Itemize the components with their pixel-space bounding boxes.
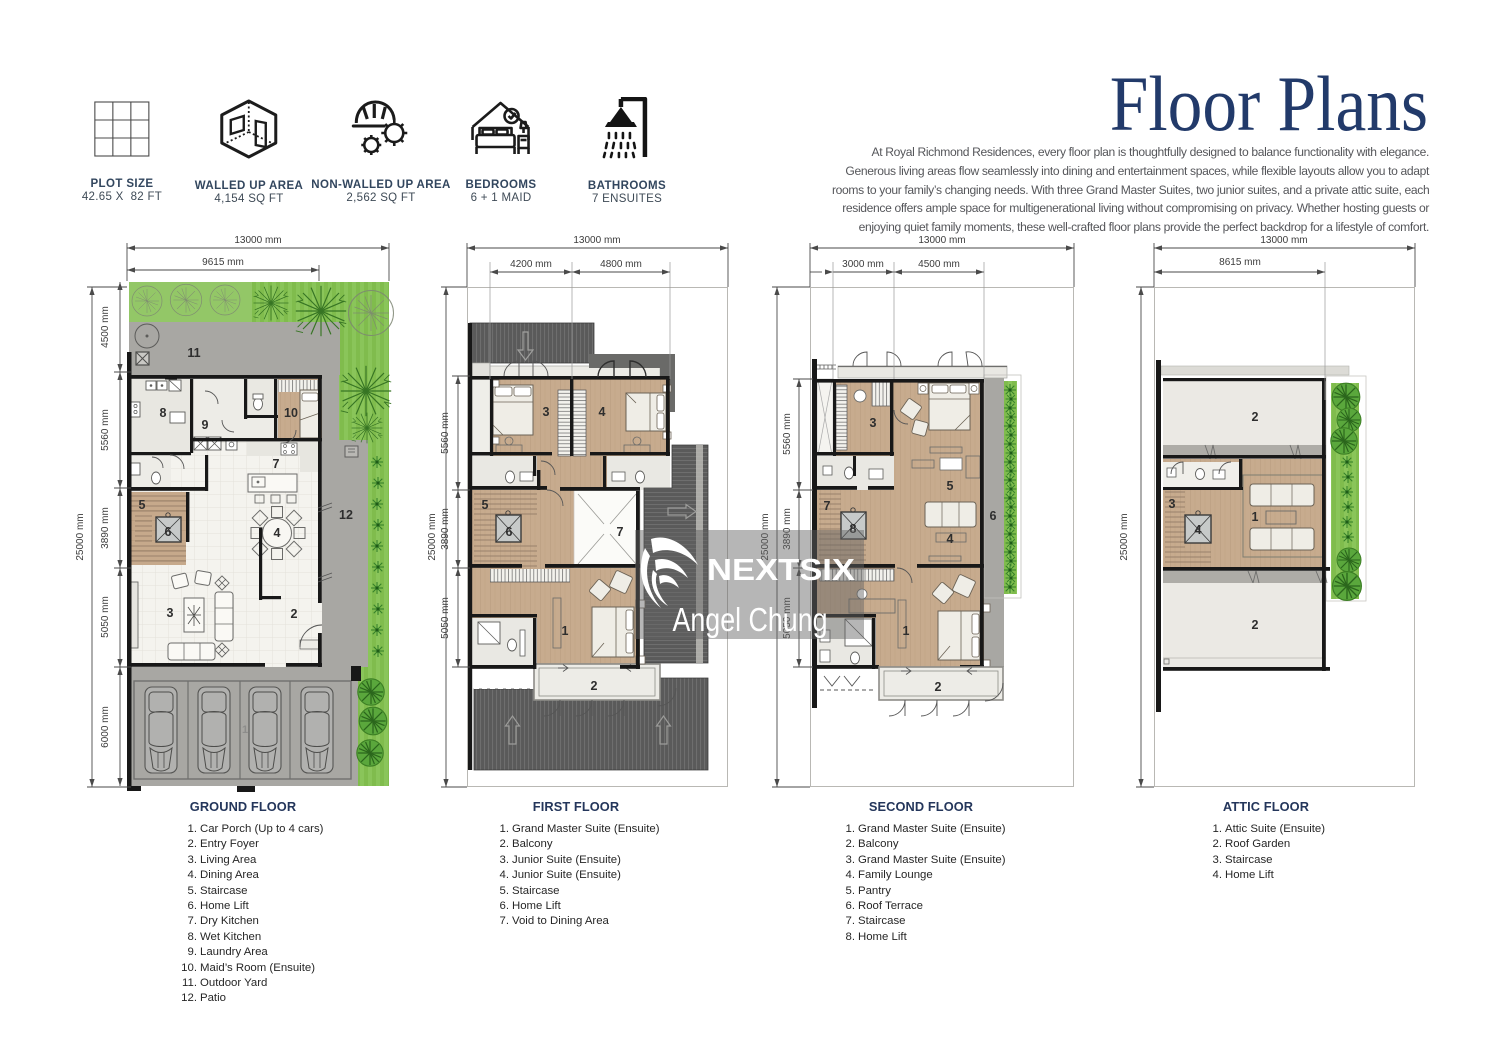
- svg-text:12: 12: [339, 508, 353, 522]
- svg-text:8615 mm: 8615 mm: [1219, 257, 1261, 268]
- svg-text:6: 6: [990, 509, 997, 523]
- svg-text:13000 mm: 13000 mm: [573, 235, 620, 246]
- svg-text:7: 7: [824, 499, 831, 513]
- svg-text:3890 mm: 3890 mm: [440, 508, 451, 550]
- svg-text:5: 5: [482, 498, 489, 512]
- svg-text:3: 3: [1169, 497, 1176, 511]
- svg-text:6: 6: [506, 525, 513, 539]
- svg-text:4500 mm: 4500 mm: [918, 259, 960, 270]
- svg-text:4: 4: [274, 526, 281, 540]
- svg-text:5560 mm: 5560 mm: [440, 412, 451, 454]
- svg-text:6: 6: [165, 525, 172, 539]
- svg-text:5050 mm: 5050 mm: [440, 597, 451, 639]
- svg-text:3890 mm: 3890 mm: [100, 507, 111, 549]
- svg-text:2: 2: [591, 679, 598, 693]
- svg-text:2: 2: [1252, 410, 1259, 424]
- svg-text:25000 mm: 25000 mm: [75, 513, 86, 560]
- svg-text:9: 9: [202, 418, 209, 432]
- svg-text:Angel Chung: Angel Chung: [673, 601, 828, 638]
- svg-text:6000 mm: 6000 mm: [100, 706, 111, 748]
- svg-text:5050 mm: 5050 mm: [100, 596, 111, 638]
- svg-text:25000 mm: 25000 mm: [1119, 513, 1130, 560]
- svg-text:13000 mm: 13000 mm: [1260, 235, 1307, 246]
- svg-text:2: 2: [935, 680, 942, 694]
- svg-text:4: 4: [1195, 523, 1202, 537]
- svg-text:1: 1: [242, 724, 248, 736]
- svg-text:5560 mm: 5560 mm: [100, 409, 111, 451]
- svg-text:8: 8: [160, 406, 167, 420]
- svg-text:1: 1: [903, 624, 910, 638]
- svg-text:13000 mm: 13000 mm: [918, 235, 965, 246]
- svg-text:25000 mm: 25000 mm: [427, 513, 438, 560]
- svg-text:11: 11: [187, 346, 200, 360]
- svg-text:3: 3: [543, 405, 550, 419]
- svg-text:4: 4: [947, 532, 954, 546]
- svg-text:4: 4: [599, 405, 606, 419]
- svg-text:5: 5: [139, 498, 146, 512]
- svg-text:4800 mm: 4800 mm: [600, 259, 642, 270]
- svg-text:NEXTSIX: NEXTSIX: [707, 552, 855, 587]
- svg-text:3000 mm: 3000 mm: [842, 259, 884, 270]
- svg-text:2: 2: [291, 607, 298, 621]
- svg-text:2: 2: [1252, 618, 1259, 632]
- svg-text:1: 1: [1252, 510, 1259, 524]
- svg-text:9615 mm: 9615 mm: [202, 257, 244, 268]
- svg-text:7: 7: [617, 525, 624, 539]
- svg-text:3: 3: [167, 606, 174, 620]
- svg-text:7: 7: [273, 457, 280, 471]
- svg-text:5560 mm: 5560 mm: [782, 413, 793, 455]
- svg-text:1: 1: [562, 624, 569, 638]
- svg-text:13000 mm: 13000 mm: [234, 235, 281, 246]
- svg-text:3: 3: [870, 416, 877, 430]
- svg-text:10: 10: [284, 406, 298, 420]
- svg-text:4500 mm: 4500 mm: [100, 306, 111, 348]
- svg-text:5: 5: [947, 479, 954, 493]
- svg-text:4200 mm: 4200 mm: [510, 259, 552, 270]
